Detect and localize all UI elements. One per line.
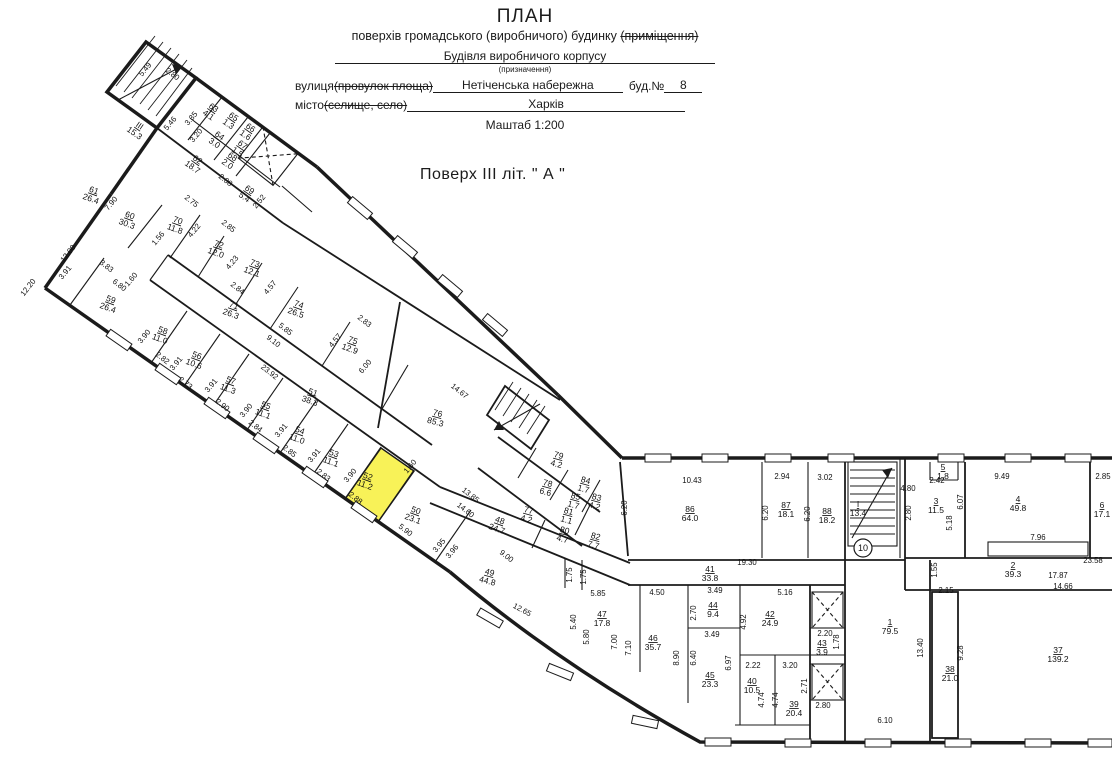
room-label-1: 179.5 [882,617,899,636]
document-title: ПЛАН [295,6,755,28]
dimension-label: 3.90 [238,401,255,419]
room-label-43: 433.9 [816,638,828,657]
dimension-label: 4.92 [739,614,748,629]
room-label-73: 7312.1 [242,256,264,280]
dimension-label: 1.78 [832,634,841,649]
dimension-label: 3.49 [707,586,722,595]
dimension-label: 6.20 [620,500,629,516]
plan-labels: ІІІ15.3634.1651.3661.6643.0671.5682.0621… [18,61,1111,725]
room-label-61: 6126.4 [81,183,103,207]
building-no-label: буд.№ [629,79,664,93]
room-label-59: 5926.4 [98,292,120,316]
dimension-label: 5.80 [582,629,591,645]
room-label-56: 5610.6 [184,348,206,372]
dimension-label: 9.28 [956,645,965,660]
dimension-label: 5.85 [590,589,606,598]
subtitle-struck-part: (приміщення) [620,29,698,43]
dimension-label: 1.56 [150,230,167,247]
dimension-label: 2.85 [1095,472,1111,481]
room-label-38: 3821.0 [942,664,959,683]
floor-title: Поверх ІІІ літ. " А " [420,166,565,184]
room-label-54: 5411.0 [288,423,310,446]
block-interior-walls [628,458,1112,742]
room-label-39: 3920.4 [786,699,803,718]
city-value: Харків [407,97,685,112]
room-label-72: 7212.0 [206,237,228,261]
room-label-44: 449.4 [707,600,719,619]
dimension-label: 1.55 [930,562,939,578]
city-label: місто [295,98,324,112]
elevator-shaft-1 [812,592,843,628]
document-subtitle: поверхів громадського (виробничого) буди… [295,29,755,43]
dimension-label: 17.87 [1048,571,1068,580]
dimension-label: 2.80 [815,701,831,710]
dimension-label: 6.10 [877,716,893,725]
dimension-label: 1.75 [565,567,574,583]
room-label-76: 7685.3 [426,406,447,429]
dimension-label: 3.02 [817,473,832,482]
room-label-60: 6030.3 [117,208,139,232]
room-label-50: 5023.1 [403,503,425,527]
city-struck: (селище, село) [324,98,407,112]
dimension-label: 2.15 [938,586,954,595]
dimension-label: 23.92 [259,362,280,381]
dimension-label: 5.16 [777,588,792,597]
dimension-label: 2.20 [817,629,833,638]
floor-plan-document: ІІІ15.3634.1651.3661.6643.0671.5682.0621… [0,0,1112,766]
building-no-value: 8 [664,78,702,93]
dimension-label: 3.91 [306,447,323,464]
dimension-label: 6.07 [956,494,965,509]
dimension-label: 7.10 [624,640,633,656]
street-value: Нетіченська набережна [433,78,623,93]
room-label-47: 4717.8 [594,609,611,628]
room-label-3: 311.5 [928,496,944,515]
dimension-label: 10.43 [682,476,702,485]
room-label-79: 794.2 [549,449,566,470]
dimension-label: 12.65 [511,601,533,618]
dimension-label: 2.83 [356,313,374,329]
room-label-49: 4944.8 [478,565,499,588]
dimension-label: 1.60 [402,457,419,475]
room-label-46: 4635.7 [645,633,662,652]
badge-label-10: 10 [858,543,868,553]
dimension-label: 2.70 [689,605,698,621]
room-label-4: 449.8 [1010,494,1027,513]
dimension-label: 4.22 [186,222,203,239]
dimension-label: 5.18 [945,515,954,530]
room-label-40: 4010.5 [744,676,761,695]
dimension-label: 2.84 [229,280,247,297]
room-label-71: 7126.3 [221,298,243,322]
room-label-83: 834.2 [587,491,604,512]
dimension-label: 8.90 [672,650,681,666]
dimension-label: 2.42 [929,476,944,485]
dimension-label: 4.50 [649,588,665,597]
room-label-45: 4523.3 [702,670,719,689]
elevator-shaft-2 [812,664,843,700]
dimension-label: 12.20 [18,276,38,297]
dimension-label: 2.75 [183,193,201,210]
dimension-label: 4.74 [771,692,780,708]
dimension-label: 4.80 [900,484,916,493]
dimension-label: 3.20 [188,126,205,144]
dimension-label: 1.75 [579,569,588,585]
room-label-88: 8818.2 [819,506,836,525]
dimension-label: 2.22 [745,661,760,670]
purpose-value: Будівля виробничого корпусу [335,49,715,64]
dimension-label: 13.40 [916,638,925,658]
room-label-82: 827.7 [586,530,603,551]
dimension-label: 2.85 [220,218,238,235]
dimension-label: 5.40 [569,614,578,630]
dimension-label: 1.60 [123,270,140,288]
title-block: ПЛАН поверхів громадського (виробничого)… [295,6,755,132]
dimension-label: 23.58 [1083,556,1103,565]
dimension-label: 5.49 [137,61,154,78]
staircase-junction [487,382,549,449]
dimension-label: 3.35 [183,109,200,127]
dimension-label: 6.20 [761,505,770,521]
room-label-86: 8664.0 [682,504,699,523]
room-label-51: 5138.3 [300,385,322,409]
dimension-label: 14.66 [1053,582,1073,591]
dimension-label: 6.20 [803,506,812,522]
dimension-label: 19.30 [737,558,757,567]
room-label-42: 4224.9 [762,609,779,628]
room-label-70: 7011.8 [166,213,188,236]
dimension-label: 14.67 [449,381,470,400]
room-label-81: 811.1 [559,505,576,526]
dimension-label: 3.90 [136,327,153,345]
room-label-37: 37139.2 [1047,645,1069,664]
purpose-caption: (призначення) [295,65,755,74]
dimension-label: 9.49 [994,472,1009,481]
room-label-41: 4133.8 [702,564,719,583]
room-label-75: 7512.9 [340,333,362,357]
window-marks [106,197,1112,747]
scale-note: Маштаб 1:200 [295,118,755,132]
dimension-label: 9.00 [498,548,516,565]
room-label-53: 5311.1 [322,446,344,469]
staircase-I [848,462,897,546]
dimension-label: 4.23 [224,254,241,271]
room-label-77: 774.2 [519,504,536,525]
room-label-6: 617.1 [1094,500,1111,519]
street-struck: (провулок площа) [334,79,433,93]
dimension-label: 7.00 [610,634,619,650]
room-label-48: 4824.7 [487,513,509,537]
dimension-label: 6.97 [724,655,733,670]
dimension-label: 2.08 [217,172,235,188]
room-label-55: 5511.1 [254,398,276,421]
dimension-label: 4.57 [262,279,279,296]
dimension-label: 7.96 [1030,533,1045,542]
dimension-label: 3.20 [782,661,798,670]
dimension-label: 6.40 [689,650,698,666]
dimension-label: 3.83 [98,258,116,274]
dimension-label: 2.52 [251,193,268,210]
room-label-87: 8718.1 [778,500,795,519]
dimension-label: 2.94 [774,472,790,481]
building-outline [45,42,1112,743]
dimension-label: 3.90 [342,466,359,484]
dimension-label: 2.80 [904,505,913,521]
dimension-label: 4.74 [757,692,766,708]
dimension-label: 3.49 [704,630,719,639]
street-label: вулиця [295,79,334,93]
dimension-label: 3.91 [203,377,220,394]
dimension-label: 7.90 [103,194,120,212]
city-row: місто (селище, село) Харків [295,97,755,112]
dimension-label: 2.71 [800,678,809,693]
dimension-label: 3.91 [273,422,290,439]
room-label-58: 5811.0 [151,323,173,346]
dimension-label: 6.00 [357,357,374,375]
street-row: вулиця (провулок площа) Нетіченська набе… [295,78,755,93]
room-label-2: 239.3 [1005,560,1022,579]
